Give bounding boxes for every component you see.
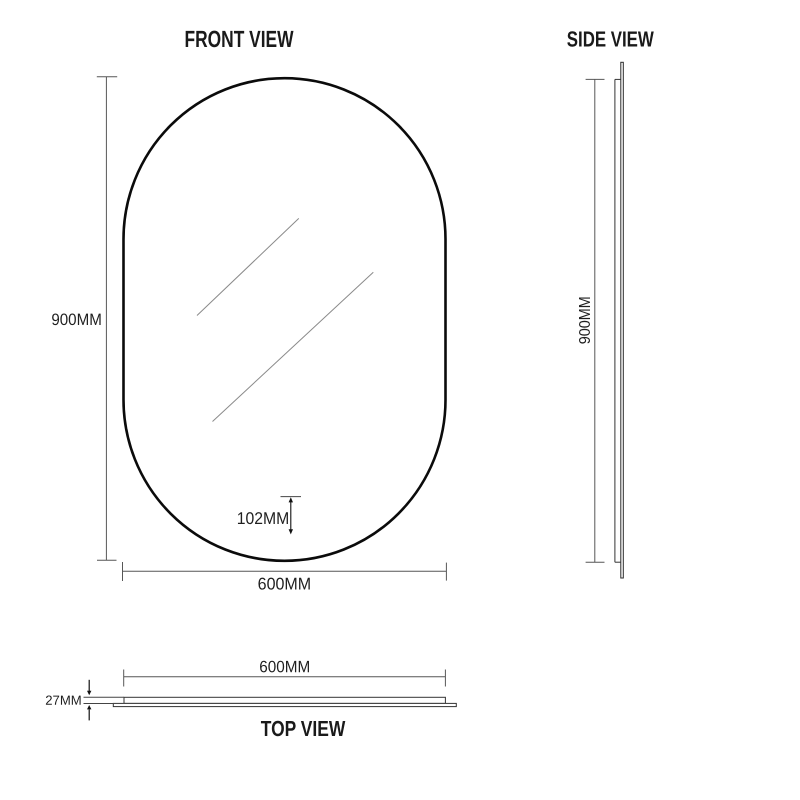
svg-text:900MM: 900MM: [577, 296, 594, 344]
svg-text:TOP VIEW: TOP VIEW: [261, 716, 346, 741]
svg-text:27MM: 27MM: [45, 693, 82, 708]
svg-text:600MM: 600MM: [259, 658, 310, 676]
svg-text:600MM: 600MM: [258, 574, 312, 593]
svg-text:FRONT VIEW: FRONT VIEW: [184, 26, 294, 52]
svg-text:102MM: 102MM: [237, 509, 290, 528]
svg-text:900MM: 900MM: [51, 311, 102, 329]
svg-text:SIDE VIEW: SIDE VIEW: [567, 26, 654, 51]
